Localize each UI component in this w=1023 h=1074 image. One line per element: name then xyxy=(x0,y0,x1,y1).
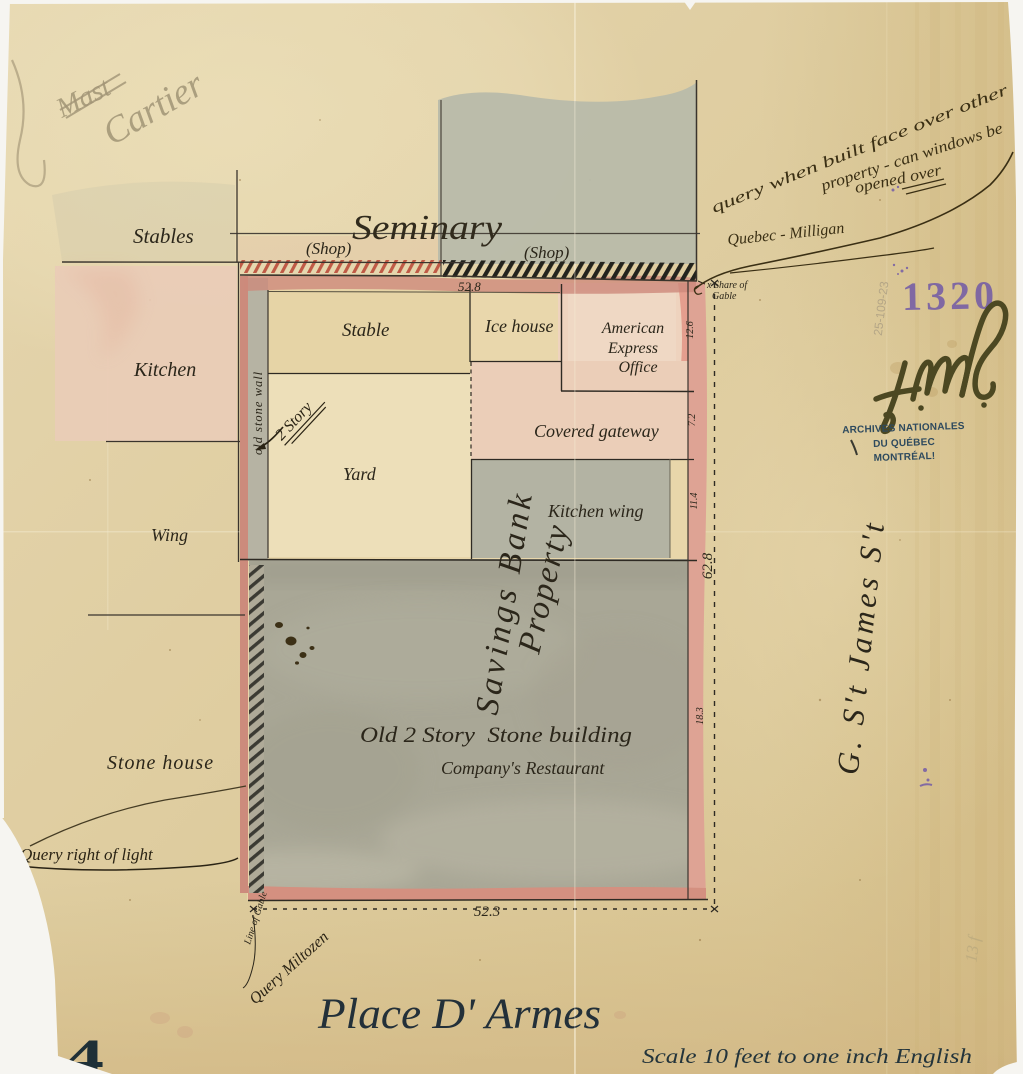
svg-text:13 f: 13 f xyxy=(962,933,984,963)
svg-text:Kitchen: Kitchen xyxy=(133,359,196,381)
svg-text:Seminary: Seminary xyxy=(352,208,503,247)
svg-text:Stable: Stable xyxy=(342,320,390,341)
svg-text:x Share of: x Share of xyxy=(706,280,748,291)
svg-text:(Shop): (Shop) xyxy=(524,243,570,262)
svg-text:Ice house: Ice house xyxy=(484,316,553,336)
svg-text:7.2: 7.2 xyxy=(687,414,698,427)
svg-text:18.3: 18.3 xyxy=(695,707,706,725)
svg-text:62.8: 62.8 xyxy=(700,552,716,579)
svg-text:Stables: Stables xyxy=(133,224,194,248)
svg-text:Wing: Wing xyxy=(151,525,188,545)
svg-text:(Shop): (Shop) xyxy=(306,239,352,258)
svg-text:Express: Express xyxy=(607,340,658,357)
svg-text:Company's Restaurant: Company's Restaurant xyxy=(441,758,605,778)
svg-text:12.6: 12.6 xyxy=(685,321,696,339)
svg-text:Stone house: Stone house xyxy=(107,752,214,774)
svg-text:Kitchen wing: Kitchen wing xyxy=(547,501,644,521)
svg-text:11.4: 11.4 xyxy=(689,493,700,510)
svg-text:Scale 10 feet to one inch Engl: Scale 10 feet to one inch English xyxy=(642,1044,972,1068)
svg-text:Query right of light: Query right of light xyxy=(20,845,154,864)
svg-text:Yard: Yard xyxy=(343,464,377,484)
svg-text:old stone wall: old stone wall xyxy=(251,371,265,455)
svg-text:Gable: Gable xyxy=(712,291,737,302)
svg-text:52.3: 52.3 xyxy=(474,904,500,920)
svg-text:Place D' Armes: Place D' Armes xyxy=(317,991,601,1038)
svg-text:52.8: 52.8 xyxy=(458,279,481,294)
svg-text:Covered gateway: Covered gateway xyxy=(534,421,659,441)
svg-text:Old 2 Story Stone building: Old 2 Story Stone building xyxy=(360,722,632,747)
svg-text:Office: Office xyxy=(618,359,657,376)
svg-text:American: American xyxy=(601,320,664,337)
